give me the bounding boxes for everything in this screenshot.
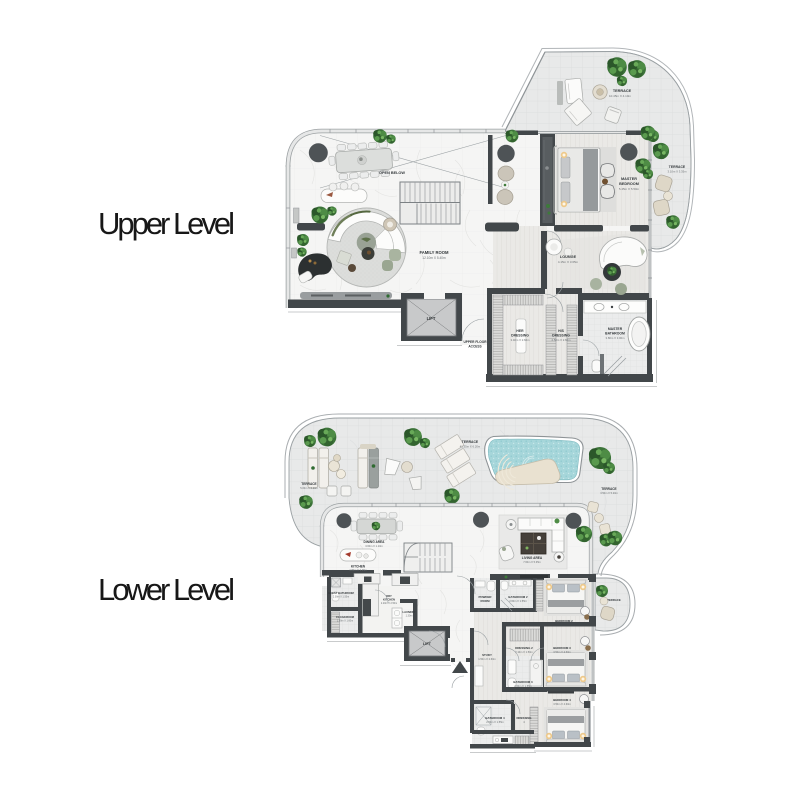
svg-text:1.30m: 1.30m (406, 615, 413, 618)
svg-text:2.60m X 1.55m: 2.60m X 1.55m (509, 599, 527, 603)
svg-text:LAUNDRY: LAUNDRY (402, 610, 415, 614)
svg-text:KITCHEN: KITCHEN (351, 565, 366, 569)
svg-text:BEDROOM 4: BEDROOM 4 (553, 698, 571, 702)
svg-text:TERRACE: TERRACE (301, 482, 316, 486)
svg-text:7.60m X 5.35m: 7.60m X 5.35m (523, 560, 541, 564)
svg-text:3.60m X 1.10m: 3.60m X 1.10m (365, 544, 383, 548)
svg-text:1.90m X 1.60m: 1.90m X 1.60m (337, 620, 353, 623)
svg-text:2.20m X 2.50m: 2.20m X 2.50m (381, 602, 397, 605)
svg-text:HIS: HIS (558, 329, 564, 333)
svg-text:MASTER: MASTER (608, 327, 623, 331)
svg-text:TERRACE: TERRACE (601, 487, 616, 491)
svg-text:MASTER: MASTER (621, 177, 637, 181)
svg-text:1.50m X 2.60m: 1.50m X 2.60m (478, 657, 496, 661)
svg-text:5.00m X 5.20m: 5.00m X 5.20m (300, 486, 318, 490)
svg-text:DRESSING: DRESSING (511, 334, 529, 338)
svg-text:BATHROOM: BATHROOM (605, 332, 625, 336)
svg-text:TERRACE: TERRACE (607, 598, 621, 602)
svg-text:3.80m X 3.00m: 3.80m X 3.00m (606, 336, 626, 340)
svg-text:Upper Level: Upper Level (98, 206, 235, 241)
svg-text:BATHROOM 2: BATHROOM 2 (508, 595, 528, 599)
svg-text:BEDROOM: BEDROOM (619, 182, 639, 186)
svg-text:TERRACE: TERRACE (669, 165, 686, 169)
svg-text:10.45m X 4.10m: 10.45m X 4.10m (609, 94, 632, 98)
svg-text:DRESSING: DRESSING (516, 716, 532, 720)
svg-text:4.80m X 3.35m: 4.80m X 3.35m (349, 568, 367, 572)
svg-text:HER: HER (516, 329, 524, 333)
svg-text:FAMILY ROOM: FAMILY ROOM (419, 250, 449, 255)
svg-text:LIFT: LIFT (423, 642, 432, 646)
svg-text:BEDROOM 3: BEDROOM 3 (553, 646, 571, 650)
svg-text:41.35m X 6.20m: 41.35m X 6.20m (460, 445, 481, 449)
svg-text:STUDY: STUDY (482, 653, 492, 657)
svg-text:DRESSING 2: DRESSING 2 (515, 646, 533, 650)
svg-text:UPPER FLOOR: UPPER FLOOR (463, 340, 487, 344)
svg-text:TERRACE: TERRACE (462, 440, 479, 444)
svg-text:LOUNGE: LOUNGE (560, 255, 577, 259)
svg-text:BATHROOM 3: BATHROOM 3 (513, 680, 533, 684)
svg-text:3.40m X 2.60m: 3.40m X 2.60m (511, 338, 531, 342)
svg-text:LIVING AREA: LIVING AREA (522, 556, 543, 560)
svg-text:ROOM: ROOM (481, 599, 491, 603)
svg-text:2.00m X 1.55m: 2.00m X 1.55m (333, 596, 349, 599)
svg-text:KITCHEN: KITCHEN (383, 598, 395, 602)
svg-text:3.50m X 4.30m: 3.50m X 4.30m (553, 702, 571, 706)
svg-text:3.50m X 4.60m: 3.50m X 4.60m (553, 650, 571, 654)
svg-text:GUEST BATHROOM: GUEST BATHROOM (328, 591, 354, 595)
svg-text:2.10m X 1.50m: 2.10m X 1.50m (515, 650, 533, 654)
svg-text:Lower Level: Lower Level (98, 572, 235, 607)
svg-text:BATHROOM 4: BATHROOM 4 (485, 716, 505, 720)
svg-text:ACCESS: ACCESS (468, 345, 481, 349)
svg-text:2.60m X 1.55m: 2.60m X 1.55m (486, 720, 504, 724)
svg-text:3.50m X 5.20m: 3.50m X 5.20m (600, 491, 618, 495)
svg-text:TERRACE: TERRACE (613, 89, 632, 93)
svg-text:LIFT: LIFT (427, 316, 436, 321)
svg-text:4.15m X 3.65m: 4.15m X 3.65m (558, 260, 579, 264)
svg-text:5.45m X 5.50m: 5.45m X 5.50m (619, 187, 640, 191)
svg-text:3.10m X 3.35m: 3.10m X 3.35m (668, 170, 688, 174)
svg-text:DINING AREA: DINING AREA (364, 540, 386, 544)
svg-text:DRESSING: DRESSING (552, 334, 570, 338)
svg-text:2.50m X 2.60m: 2.50m X 2.60m (552, 338, 572, 342)
svg-text:OPEN BELOW: OPEN BELOW (379, 171, 405, 175)
svg-text:CLOAKROOM: CLOAKROOM (336, 615, 355, 619)
svg-text:12.10m X 5.40m: 12.10m X 5.40m (422, 256, 446, 260)
